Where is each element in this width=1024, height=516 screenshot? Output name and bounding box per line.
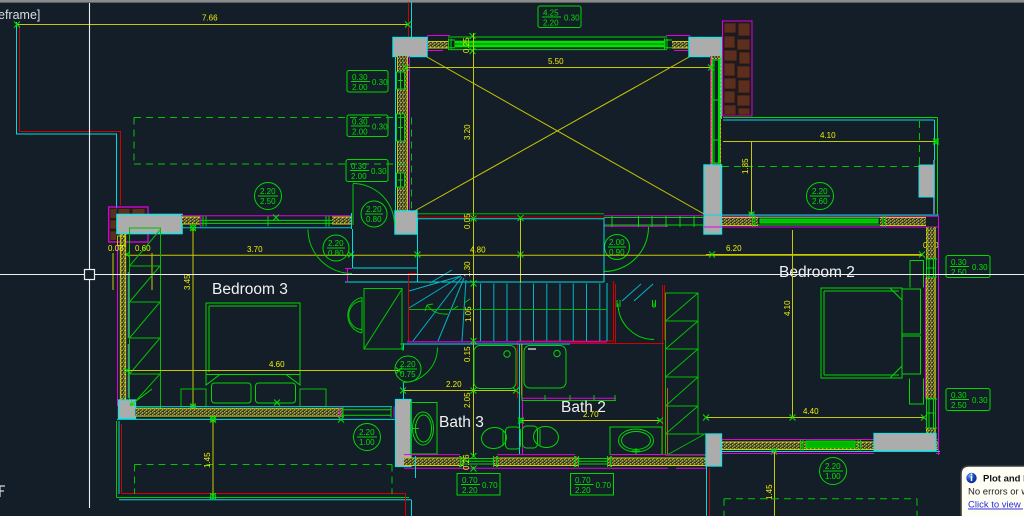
- svg-text:0.30: 0.30: [371, 167, 387, 176]
- svg-text:2.05: 2.05: [463, 392, 472, 408]
- svg-text:2.20: 2.20: [359, 428, 375, 437]
- svg-text:0.30: 0.30: [351, 162, 367, 171]
- svg-text:0.25: 0.25: [462, 37, 471, 53]
- svg-text:7.66: 7.66: [202, 14, 218, 23]
- svg-text:0.60: 0.60: [135, 244, 151, 253]
- svg-text:4.60: 4.60: [269, 360, 285, 369]
- svg-text:Plot and Pub: Plot and Pub: [983, 474, 1024, 485]
- svg-text:2.00: 2.00: [352, 128, 368, 137]
- svg-text:2.50: 2.50: [951, 268, 967, 277]
- svg-text:1.05: 1.05: [464, 306, 473, 322]
- svg-text:2.50: 2.50: [260, 197, 276, 206]
- svg-text:2.20: 2.20: [462, 486, 478, 495]
- svg-text:2.00: 2.00: [351, 172, 367, 181]
- svg-text:2.60: 2.60: [812, 197, 828, 206]
- svg-text:2.20: 2.20: [400, 360, 416, 369]
- svg-text:4.80: 4.80: [470, 246, 486, 255]
- svg-text:1.00: 1.00: [359, 438, 375, 447]
- svg-text:1.45: 1.45: [203, 452, 212, 468]
- svg-text:2.20: 2.20: [366, 205, 382, 214]
- svg-text:2.20: 2.20: [543, 19, 559, 28]
- svg-text:4.25: 4.25: [543, 9, 559, 18]
- svg-text:4.10: 4.10: [783, 300, 792, 316]
- svg-text:4.10: 4.10: [820, 131, 836, 140]
- svg-text:1.00: 1.00: [825, 472, 841, 481]
- svg-text:0.30: 0.30: [564, 14, 580, 23]
- svg-text:2.50: 2.50: [951, 401, 967, 410]
- svg-text:0.75: 0.75: [400, 370, 416, 379]
- svg-text:0.30: 0.30: [951, 391, 967, 400]
- svg-text:0.30: 0.30: [951, 258, 967, 267]
- svg-text:2.20: 2.20: [260, 187, 276, 196]
- svg-text:0.30: 0.30: [352, 118, 368, 127]
- svg-text:0.30: 0.30: [972, 263, 988, 272]
- svg-text:1.45: 1.45: [765, 484, 774, 500]
- svg-text:No errors or war: No errors or war: [968, 487, 1024, 498]
- svg-text:0.70: 0.70: [482, 481, 498, 490]
- svg-text:Bath 3: Bath 3: [439, 414, 484, 431]
- svg-text:2.20: 2.20: [575, 486, 591, 495]
- svg-text:0.80: 0.80: [328, 249, 344, 258]
- svg-text:Bedroom 2: Bedroom 2: [779, 264, 855, 281]
- svg-text:3.20: 3.20: [463, 124, 472, 140]
- svg-text:2.00: 2.00: [352, 83, 368, 92]
- svg-text:eframe]: eframe]: [0, 8, 40, 22]
- svg-text:0.08: 0.08: [108, 244, 124, 253]
- svg-text:0.15: 0.15: [463, 346, 472, 362]
- svg-text:2.00: 2.00: [609, 238, 625, 247]
- svg-text:6.20: 6.20: [726, 244, 742, 253]
- svg-text:0.80: 0.80: [366, 215, 382, 224]
- svg-text:2.20: 2.20: [825, 462, 841, 471]
- svg-text:1.85: 1.85: [741, 158, 750, 174]
- svg-text:2.70: 2.70: [583, 410, 599, 419]
- svg-text:0.30: 0.30: [372, 78, 388, 87]
- svg-text:5.50: 5.50: [548, 57, 564, 66]
- svg-text:2.20: 2.20: [446, 380, 462, 389]
- svg-text:3.45: 3.45: [183, 274, 192, 290]
- svg-text:0.30: 0.30: [972, 396, 988, 405]
- svg-text:Bedroom 3: Bedroom 3: [212, 281, 288, 298]
- svg-text:0.30: 0.30: [352, 73, 368, 82]
- svg-text:2.20: 2.20: [812, 187, 828, 196]
- svg-text:0.26: 0.26: [462, 454, 471, 470]
- svg-text:Click to view pl: Click to view pl: [968, 500, 1024, 511]
- svg-text:0.70: 0.70: [575, 476, 591, 485]
- svg-text:0.70: 0.70: [462, 476, 478, 485]
- svg-text:0.30: 0.30: [372, 123, 388, 132]
- svg-text:3.70: 3.70: [247, 245, 263, 254]
- svg-text:0.70: 0.70: [596, 481, 612, 490]
- svg-text:4.40: 4.40: [803, 407, 819, 416]
- svg-text:2.20: 2.20: [328, 239, 344, 248]
